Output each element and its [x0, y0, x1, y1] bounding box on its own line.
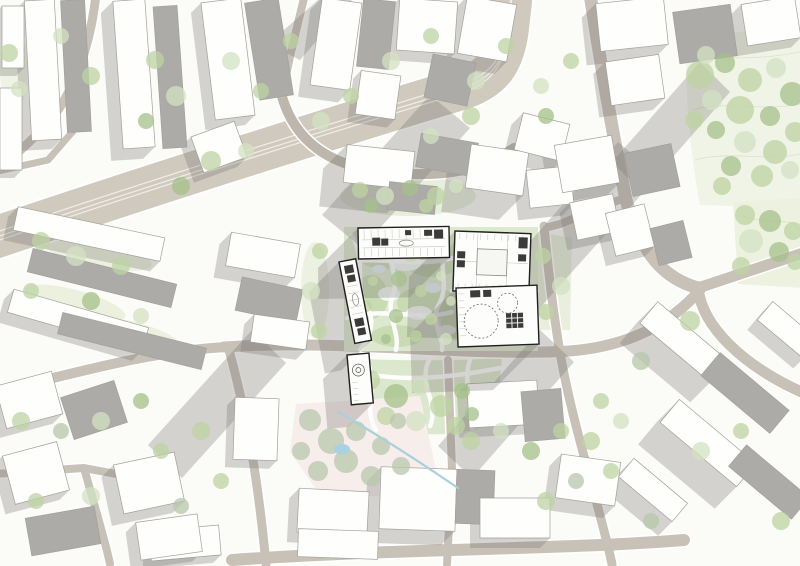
- tree: [53, 423, 69, 439]
- tree: [423, 128, 439, 144]
- courtyard: [476, 249, 507, 276]
- context-building: [136, 514, 203, 560]
- tree: [406, 411, 426, 431]
- tree: [440, 333, 452, 345]
- tree: [361, 466, 381, 486]
- tree: [172, 177, 190, 195]
- tree: [568, 473, 584, 489]
- service-core: [457, 260, 465, 267]
- tree: [238, 143, 254, 159]
- tree: [535, 248, 551, 264]
- tree: [763, 140, 787, 164]
- core-grid-line: [512, 313, 513, 328]
- tree: [389, 309, 403, 323]
- tree: [368, 276, 378, 286]
- context-building: [233, 397, 279, 460]
- context-building: [596, 0, 669, 51]
- tree: [166, 86, 186, 106]
- tree: [436, 271, 446, 281]
- tree: [449, 179, 463, 193]
- tree: [715, 53, 735, 73]
- tree: [465, 407, 479, 421]
- tree: [538, 108, 554, 124]
- tree: [299, 409, 321, 431]
- tree: [686, 61, 714, 89]
- tree: [82, 67, 100, 85]
- tree: [392, 457, 410, 475]
- core-grid-line: [506, 323, 523, 324]
- tree: [346, 421, 366, 441]
- tree: [201, 151, 221, 171]
- tree: [447, 417, 465, 435]
- core-grid-line: [517, 313, 518, 328]
- tree: [632, 352, 650, 370]
- service-core: [518, 237, 527, 248]
- tree: [582, 432, 600, 450]
- context-building: [605, 54, 665, 105]
- tree: [766, 58, 786, 78]
- tree: [702, 90, 722, 110]
- service-core: [470, 290, 480, 297]
- tree: [112, 257, 130, 275]
- tree: [133, 308, 149, 324]
- tree: [222, 52, 240, 70]
- tree: [133, 393, 149, 409]
- tree: [23, 283, 39, 299]
- tree: [467, 72, 485, 90]
- site-building-southeast-halls: [456, 285, 539, 347]
- tree: [311, 323, 327, 339]
- tree: [593, 393, 609, 409]
- service-core: [372, 238, 380, 246]
- tree: [308, 461, 328, 481]
- core-block: [506, 313, 524, 329]
- tree: [28, 493, 44, 509]
- tree: [552, 277, 570, 295]
- service-core: [405, 230, 411, 235]
- tree: [462, 432, 480, 450]
- tree: [302, 282, 320, 300]
- service-core: [381, 238, 388, 245]
- tree: [759, 210, 781, 232]
- plaza-pond: [334, 444, 350, 454]
- tree: [430, 395, 452, 417]
- tree: [769, 242, 789, 262]
- tree: [734, 131, 756, 153]
- tree: [376, 187, 394, 205]
- tree: [419, 199, 433, 213]
- context-building: [355, 70, 401, 119]
- tree: [462, 107, 480, 125]
- site-building-south-point: [347, 353, 373, 405]
- tree: [0, 44, 18, 62]
- context-building: [465, 144, 529, 196]
- site-plan-svg: [0, 0, 800, 566]
- service-core: [424, 230, 432, 236]
- service-core: [483, 290, 491, 297]
- tree: [613, 413, 629, 429]
- tree: [410, 330, 422, 342]
- tree: [381, 334, 391, 344]
- tree: [680, 311, 700, 331]
- service-core: [354, 317, 364, 327]
- tree: [522, 442, 540, 460]
- tree: [643, 513, 659, 529]
- tree: [760, 106, 780, 126]
- tree: [312, 243, 328, 259]
- tree: [53, 28, 69, 44]
- tree: [713, 177, 731, 195]
- tree: [82, 292, 100, 310]
- context-building: [555, 454, 621, 506]
- tree: [537, 492, 555, 510]
- tree: [352, 182, 368, 198]
- context-building: [396, 0, 457, 54]
- tree: [82, 487, 100, 505]
- tree: [538, 304, 554, 320]
- context-building: [298, 529, 379, 560]
- tree: [364, 199, 378, 213]
- site-building-northeast-court: [453, 231, 531, 294]
- tree: [173, 498, 189, 514]
- tree: [425, 313, 437, 325]
- tree: [66, 246, 86, 266]
- tree: [732, 257, 750, 275]
- service-core: [347, 274, 356, 282]
- tree: [685, 111, 703, 129]
- context-building: [0, 88, 22, 170]
- tree: [493, 423, 509, 439]
- tree: [603, 463, 619, 479]
- tree: [382, 52, 400, 70]
- tree: [153, 443, 169, 459]
- tree: [563, 53, 579, 69]
- context-building: [741, 0, 800, 46]
- tree: [781, 161, 799, 179]
- tree: [253, 83, 269, 99]
- tree: [553, 423, 569, 439]
- tree: [726, 96, 754, 124]
- service-core: [357, 327, 366, 335]
- tree: [533, 78, 549, 94]
- tree: [213, 473, 229, 489]
- tree: [707, 121, 725, 139]
- service-core: [434, 230, 443, 239]
- context-building-gray-roof: [624, 143, 680, 196]
- tree: [283, 33, 299, 49]
- tree: [446, 296, 456, 306]
- tree: [733, 423, 749, 439]
- tree: [391, 271, 407, 287]
- service-core: [518, 254, 526, 261]
- site-building-north-bar: [358, 226, 450, 259]
- tree: [384, 384, 408, 408]
- tree: [12, 412, 30, 430]
- tree: [692, 442, 710, 460]
- context-building: [554, 135, 619, 192]
- tree: [738, 68, 762, 92]
- tree: [772, 512, 790, 530]
- tree: [739, 229, 763, 253]
- tree: [498, 38, 514, 54]
- core-grid-line: [506, 318, 523, 319]
- tree: [411, 377, 429, 395]
- tree: [454, 383, 470, 399]
- tree: [751, 165, 773, 187]
- tree: [138, 113, 154, 129]
- context-building: [379, 467, 457, 532]
- service-core: [344, 264, 354, 274]
- tree: [402, 180, 418, 196]
- tree: [146, 51, 164, 69]
- service-core: [457, 251, 465, 258]
- tree: [735, 205, 755, 225]
- tree: [292, 442, 310, 460]
- tree: [92, 412, 110, 430]
- tree: [312, 112, 330, 130]
- site-plan-canvas: [0, 0, 800, 566]
- tree: [415, 285, 427, 297]
- tree: [192, 422, 210, 440]
- tree: [697, 46, 715, 64]
- tree: [343, 88, 359, 104]
- tree: [423, 28, 439, 44]
- tree: [721, 156, 741, 176]
- tree: [390, 413, 406, 429]
- tree: [372, 437, 390, 455]
- tree: [32, 232, 50, 250]
- site-building-south-point-outline: [347, 353, 373, 405]
- tree: [11, 81, 27, 97]
